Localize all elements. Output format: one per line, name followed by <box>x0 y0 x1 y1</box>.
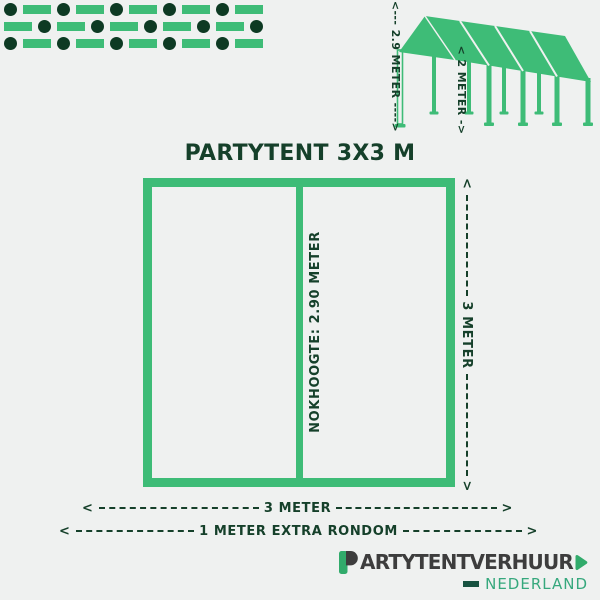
dot-icon <box>144 20 157 33</box>
logo-name: ARTYTENTVERHUUR <box>360 550 573 574</box>
dot-icon <box>57 3 70 16</box>
dot-icon <box>216 37 229 50</box>
dash-icon <box>182 39 210 48</box>
tent-spec-poster: <--- 2.9 METER ----> < 2 METER -> PARTYT… <box>0 0 600 600</box>
extra-space-label: 1 METER EXTRA RONDOM <box>199 524 398 539</box>
ridge-line <box>296 187 303 478</box>
dashed-line <box>466 374 468 476</box>
dot-icon <box>216 3 229 16</box>
dot-icon <box>57 37 70 50</box>
dash-icon <box>4 22 32 31</box>
tent-height-label: <--- 2.9 METER ----> <box>389 13 403 120</box>
dash-icon <box>235 5 263 14</box>
dash-icon <box>23 5 51 14</box>
dash-icon <box>76 5 104 14</box>
dashed-line <box>466 195 468 297</box>
arrow-right-icon: > <box>527 524 539 539</box>
pattern-row <box>4 20 263 33</box>
logo-initial-p-icon <box>339 551 358 574</box>
dot-icon <box>110 37 123 50</box>
dashed-line <box>76 530 195 532</box>
tent-bay-label: < 2 METER -> <box>455 56 469 124</box>
dash-icon <box>76 39 104 48</box>
dash-icon <box>110 22 138 31</box>
dash-icon <box>129 5 157 14</box>
arrow-right-icon: > <box>502 501 514 516</box>
dash-icon <box>129 39 157 48</box>
arrow-down-icon: > <box>460 481 475 493</box>
logo-country: NEDERLAND <box>485 575 588 593</box>
dot-icon <box>4 3 17 16</box>
dot-icon <box>163 3 176 16</box>
side-dimension: < 3 METER > <box>459 178 475 492</box>
dot-icon <box>91 20 104 33</box>
dash-icon <box>182 5 210 14</box>
logo-wordmark: ARTYTENTVERHUUR <box>339 550 588 574</box>
dot-icon <box>38 20 51 33</box>
dashed-line <box>403 530 522 532</box>
pattern-row <box>4 37 263 50</box>
width-dimension-label: 3 METER <box>264 501 331 516</box>
extra-space-dimension: < 1 METER EXTRA RONDOM > <box>59 523 538 539</box>
pattern-row <box>4 3 263 16</box>
arrow-left-icon: < <box>59 524 71 539</box>
dot-icon <box>163 37 176 50</box>
dot-icon <box>250 20 263 33</box>
width-dimension: < 3 METER > <box>82 500 513 516</box>
tent-illustration <box>393 8 593 134</box>
arrow-up-icon: < <box>460 178 475 190</box>
dash-icon <box>23 39 51 48</box>
dash-icon <box>163 22 191 31</box>
logo-triangle-icon <box>575 554 588 571</box>
tent-floorplan <box>143 178 455 487</box>
ridge-height-label: NOKHOOGTE: 2.90 METER <box>307 185 323 479</box>
dot-icon <box>4 37 17 50</box>
tent-graphic <box>393 8 593 130</box>
side-dimension-label: 3 METER <box>460 301 475 368</box>
dash-icon <box>235 39 263 48</box>
page-title: PARTYTENT 3X3 M <box>0 141 600 166</box>
dashed-line <box>336 507 496 509</box>
dot-icon <box>197 20 210 33</box>
dash-icon <box>216 22 244 31</box>
logo: ARTYTENTVERHUUR NEDERLAND <box>339 550 588 593</box>
dashed-line <box>99 507 259 509</box>
dot-dash-pattern <box>4 3 263 50</box>
dot-icon <box>110 3 123 16</box>
logo-dash-icon <box>463 581 479 587</box>
dash-icon <box>57 22 85 31</box>
arrow-left-icon: < <box>82 501 94 516</box>
logo-subline: NEDERLAND <box>463 575 588 593</box>
